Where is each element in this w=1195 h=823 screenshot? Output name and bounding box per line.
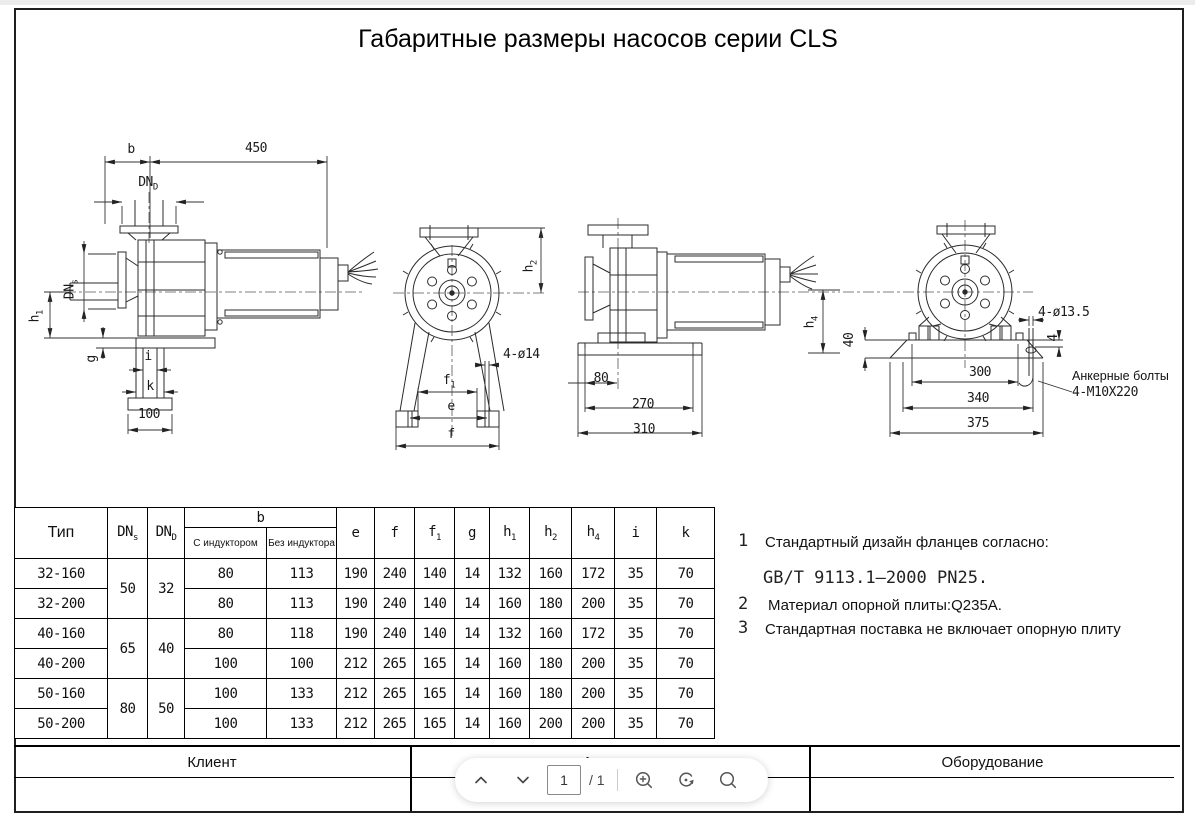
col-header-dnd: DND (148, 508, 185, 559)
dim-label-h1: h1 (29, 296, 48, 336)
dim-label-310: 310 (628, 423, 660, 437)
anchor-bolts-size-label: 4-M10X220 (1072, 386, 1138, 400)
note-1-standard: GB/T 9113.1–2000 PN25. (763, 568, 988, 588)
pdf-toolbar: / 1 (455, 758, 768, 802)
dim-label-375: 375 (960, 417, 996, 431)
dim-label-f1: f1 (440, 374, 458, 393)
top-edge-strip (0, 0, 1195, 5)
col-header-k: k (657, 508, 715, 559)
dim-label-dnd: DND (130, 176, 166, 195)
cell-type: 32-160 (15, 559, 108, 589)
zoom-in-icon (634, 770, 654, 790)
page-number-input[interactable] (547, 765, 581, 795)
col-header-i: i (615, 508, 657, 559)
dimensions-table: Тип DNs DND b e f f1 g h1 h2 h4 i k С ин… (14, 507, 715, 739)
dim-label-4xd13-5: 4-ø13.5 (1038, 306, 1089, 320)
note-1-text: Стандартный дизайн фланцев согласно: (765, 534, 1049, 551)
dim-label-100: 100 (134, 408, 164, 422)
col-header-b-with-inducer: С индуктором (185, 528, 267, 559)
col-header-b: b (185, 508, 337, 528)
cell-dnd: 40 (148, 619, 185, 679)
cell-type: 40-200 (15, 649, 108, 679)
dim-label-dns: DNs (64, 269, 83, 309)
col-header-f: f (375, 508, 415, 559)
zoom-in-button[interactable] (624, 762, 664, 798)
col-header-e: e (337, 508, 375, 559)
dim-label-4xd14: 4-ø14 (503, 348, 540, 362)
pump-side-view-drawing (30, 140, 380, 440)
col-header-h2: h2 (530, 508, 572, 559)
dim-label-h2: h2 (523, 246, 542, 286)
search-icon (718, 770, 738, 790)
col-header-b-without-inducer: Без индуктора (267, 528, 337, 559)
col-header-h4: h4 (572, 508, 615, 559)
note-3-text: Стандартная поставка не включает опорную… (765, 621, 1121, 638)
table-row: 50-160 80 50 100133 212265165 14160180 2… (15, 679, 715, 709)
dim-label-80: 80 (590, 372, 612, 386)
page-total-label: / 1 (589, 772, 605, 788)
rotate-button[interactable] (666, 762, 706, 798)
cell-dns: 80 (108, 679, 148, 739)
client-block: Клиент (14, 747, 410, 811)
cell-dnd: 32 (148, 559, 185, 619)
pump-front-view-baseplate-drawing (835, 200, 1195, 445)
table-row: 32-160 50 32 80113 190240140 14132160 17… (15, 559, 715, 589)
dim-label-h4: h4 (804, 302, 823, 342)
dim-label-e: e (444, 400, 458, 414)
note-2-number: 2 (738, 594, 748, 614)
note-2-text: Материал опорной плиты:Q235A. (768, 597, 1002, 614)
col-header-h1: h1 (490, 508, 530, 559)
equipment-label: Оборудование (811, 747, 1174, 778)
anchor-bolts-label: Анкерные болты (1072, 369, 1169, 383)
col-header-dns: DNs (108, 508, 148, 559)
cell-type: 32-200 (15, 589, 108, 619)
table-row: 40-160 65 40 80118 190240140 14132160 17… (15, 619, 715, 649)
chevron-down-icon (513, 770, 533, 790)
col-header-g: g (455, 508, 490, 559)
dim-label-450: 450 (236, 142, 276, 156)
cell-type: 50-160 (15, 679, 108, 709)
note-3-number: 3 (738, 618, 748, 638)
dim-label-340: 340 (960, 392, 996, 406)
cell-dnd: 50 (148, 679, 185, 739)
equipment-block: Оборудование (809, 747, 1174, 811)
cell-dns: 50 (108, 559, 148, 619)
dim-label-k: k (142, 380, 158, 394)
note-1-number: 1 (738, 531, 748, 551)
cell-type: 50-200 (15, 709, 108, 739)
dim-label-i: i (140, 350, 156, 364)
dim-label-270: 270 (627, 398, 659, 412)
rotate-icon (676, 770, 696, 790)
previous-page-button[interactable] (461, 762, 501, 798)
cell-dns: 65 (108, 619, 148, 679)
col-header-f1: f1 (415, 508, 455, 559)
chevron-up-icon (471, 770, 491, 790)
dim-label-b: b (121, 143, 141, 157)
client-label: Клиент (14, 747, 410, 778)
search-button[interactable] (708, 762, 748, 798)
cell-type: 40-160 (15, 619, 108, 649)
next-page-button[interactable] (503, 762, 543, 798)
col-header-type: Тип (15, 508, 108, 559)
toolbar-divider (617, 769, 618, 791)
dim-label-f: f (444, 428, 458, 442)
dim-label-4: 4 (1047, 318, 1061, 358)
dim-label-300: 300 (962, 366, 998, 380)
page-title: Габаритные размеры насосов серии CLS (14, 25, 1182, 54)
dim-label-40: 40 (843, 320, 857, 360)
dim-label-g: g (85, 339, 99, 379)
